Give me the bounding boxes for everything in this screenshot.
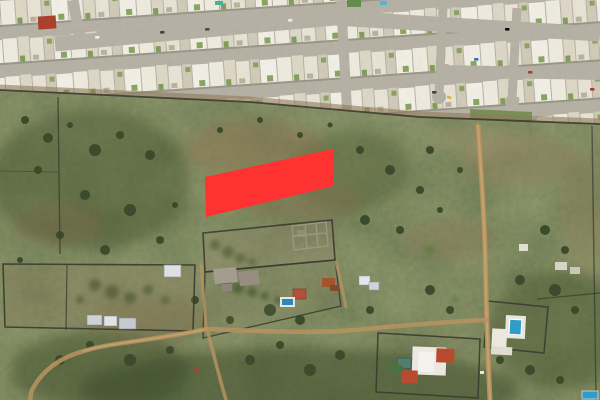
swimming-pool-1 bbox=[282, 299, 293, 305]
white-shed-2 bbox=[369, 282, 379, 290]
swimming-pool-corner bbox=[582, 391, 598, 399]
satellite-map-image bbox=[0, 0, 600, 400]
shed-metal-roof bbox=[164, 265, 181, 277]
small-shed-right-3 bbox=[570, 267, 580, 274]
white-vehicle bbox=[480, 371, 484, 374]
small-shed-right-1 bbox=[519, 244, 528, 251]
concrete-structure-2 bbox=[238, 270, 260, 286]
rust-roof-shed-2 bbox=[330, 285, 339, 291]
concrete-structure-1 bbox=[213, 267, 238, 284]
shed-3 bbox=[119, 318, 136, 329]
white-shed-1 bbox=[359, 276, 370, 285]
small-shed-right-2 bbox=[555, 262, 567, 270]
shed-1 bbox=[87, 315, 102, 325]
shed-2 bbox=[104, 316, 117, 326]
concrete-structure-3 bbox=[222, 284, 232, 291]
screenshot-root bbox=[0, 0, 600, 400]
